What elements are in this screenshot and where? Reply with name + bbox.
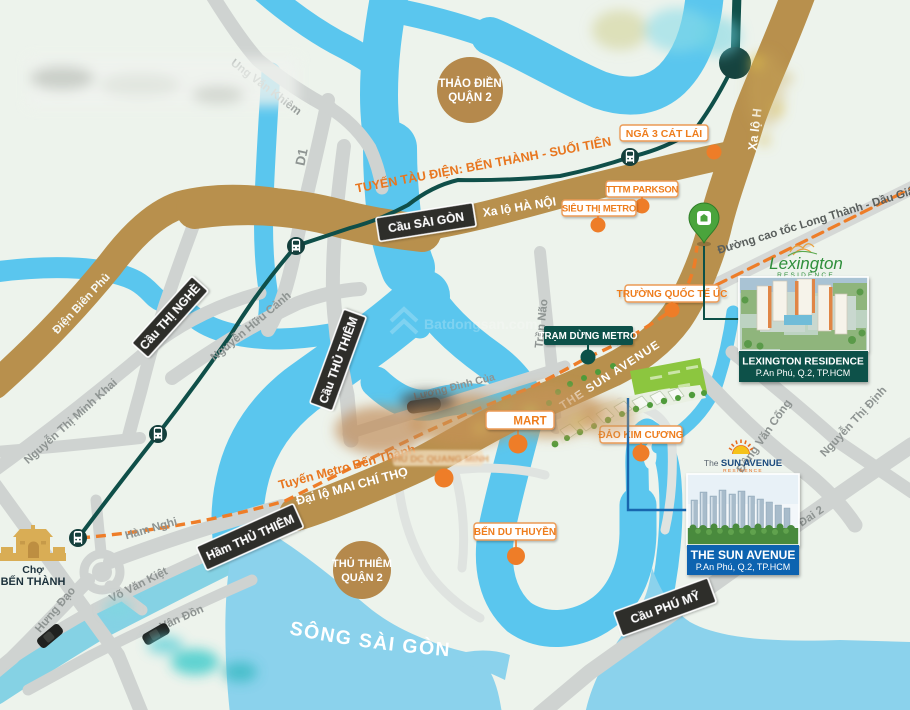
svg-text:THE SUN AVENUE: THE SUN AVENUE <box>691 548 796 562</box>
svg-text:NGÃ 3 CÁT LÁI: NGÃ 3 CÁT LÁI <box>626 127 703 140</box>
svg-text:TRẠM DỪNG METRO: TRẠM DỪNG METRO <box>538 330 637 342</box>
svg-text:RESIDENCE: RESIDENCE <box>723 468 763 474</box>
svg-text:QUẬN 2: QUẬN 2 <box>341 571 383 584</box>
svg-text:P.An Phú, Q.2, TP.HCM: P.An Phú, Q.2, TP.HCM <box>756 368 851 378</box>
svg-text:Lexington: Lexington <box>769 254 843 273</box>
svg-text:Batdongsan.com: Batdongsan.com <box>424 316 538 332</box>
svg-text:BẾN THÀNH: BẾN THÀNH <box>1 575 66 588</box>
svg-text:P.An Phú, Q.2, TP.HCM: P.An Phú, Q.2, TP.HCM <box>696 562 791 572</box>
svg-text:TTTM PARKSON: TTTM PARKSON <box>606 185 679 196</box>
svg-text:SIÊU THỊ METRO: SIÊU THỊ METRO <box>562 203 636 215</box>
svg-text:LEXINGTON RESIDENCE: LEXINGTON RESIDENCE <box>742 357 864 368</box>
svg-text:THỦ THIÊM: THỦ THIÊM <box>332 557 392 570</box>
svg-text:Chợ: Chợ <box>22 564 44 576</box>
svg-text:TRƯỜNG QUỐC TẾ ÚC: TRƯỜNG QUỐC TẾ ÚC <box>617 286 728 300</box>
svg-text:QUẬN 2: QUẬN 2 <box>448 91 491 104</box>
svg-text:MART: MART <box>513 416 546 428</box>
svg-text:THẢO ĐIỀN: THẢO ĐIỀN <box>438 77 501 90</box>
svg-text:The SUN AVENUE: The SUN AVENUE <box>704 458 782 469</box>
svg-text:BẾN DU THUYỀN: BẾN DU THUYỀN <box>474 525 556 538</box>
svg-text:KHU DC QUANG MINH: KHU DC QUANG MINH <box>387 454 489 465</box>
